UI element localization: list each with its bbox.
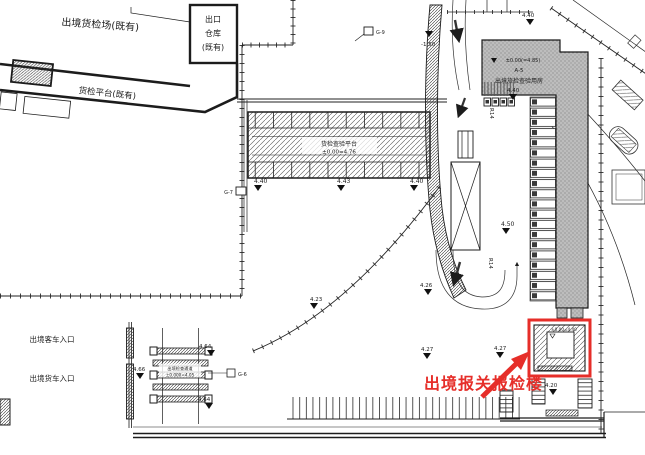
- keynote-g9: G-9: [376, 30, 385, 36]
- elevation-marker: 4.40: [522, 13, 535, 25]
- radius-label: R14: [487, 258, 493, 269]
- elevation-marker: 4.43: [337, 178, 351, 191]
- toll-gate: 出境检查通道 ±0.000=4.05 G-6: [150, 328, 247, 424]
- inspection-platform-building: 货检查验平台 ±0.00=4.76: [248, 112, 430, 178]
- entrance-bus-label: 出境客车入口: [30, 334, 75, 344]
- elevation-marker: 4.26: [420, 283, 433, 295]
- highlight-label: 出境报关报检楼: [424, 374, 543, 393]
- svg-text:4.27: 4.27: [494, 346, 507, 352]
- platform-building-level: ±0.00=4.76: [322, 150, 356, 156]
- elevation-marker: 4.27: [494, 346, 507, 358]
- svg-text:4.66: 4.66: [133, 367, 146, 373]
- plan-svg: 出境货检场(既有) 出口 仓库 (既有) 货检平台(既有): [0, 0, 645, 455]
- svg-text:4.64: 4.64: [199, 344, 212, 350]
- elevation-marker: 4.40: [254, 178, 268, 191]
- svg-text:4.26: 4.26: [420, 283, 433, 289]
- svg-text:4.20: 4.20: [545, 383, 558, 389]
- parking-row: [287, 397, 520, 419]
- entrance-gates: 出境客车入口 出境货车入口: [0, 322, 134, 428]
- svg-text:4.23: 4.23: [310, 297, 323, 303]
- elevation-marker: 4.23: [310, 297, 323, 309]
- building-strip: [538, 366, 572, 371]
- keynote-g7: G-7: [224, 190, 233, 196]
- weighbridge: [451, 131, 480, 250]
- svg-text:4.40: 4.40: [507, 88, 520, 94]
- elevation-marker: 4.50: [501, 221, 515, 234]
- corner-hatched-box: [0, 399, 10, 425]
- main-building-floor: 1F: [455, 28, 463, 35]
- warehouse-label: 仓库: [205, 28, 221, 38]
- main-building-code: A-5: [514, 68, 524, 74]
- svg-text:4.40: 4.40: [522, 13, 535, 19]
- elevation-marker: 4.27: [421, 347, 434, 359]
- dock-leveler-hatched: [11, 60, 53, 86]
- lane-arrow: [460, 98, 465, 112]
- elevation-marker: 4.40: [410, 178, 424, 191]
- curved-fence: [253, 186, 440, 351]
- svg-text:4.64: 4.64: [198, 397, 211, 403]
- toll-gate-level: ±0.000=4.05: [166, 373, 195, 378]
- booth-column: [530, 97, 556, 301]
- elevation-marker: 4.66: [133, 367, 146, 379]
- site-plan-drawing: 出境货检场(既有) 出口 仓库 (既有) 货检平台(既有): [0, 0, 645, 455]
- toll-gate-name: 出境检查通道: [167, 365, 193, 372]
- warehouse-label: (既有): [202, 42, 224, 52]
- svg-text:4.43: 4.43: [337, 178, 351, 185]
- radius-label: R14: [488, 108, 494, 119]
- elevation-marker: 4.20: [545, 383, 558, 395]
- dock-vehicle: [23, 96, 71, 118]
- existing-facility: 出境货检场(既有) 出口 仓库 (既有) 货检平台(既有): [0, 5, 237, 118]
- speed-bump: [546, 410, 578, 416]
- toll-gate-note: G-6: [238, 372, 247, 378]
- radius-labels: R14 R14: [487, 108, 494, 269]
- svg-text:4.40: 4.40: [254, 178, 268, 185]
- gate-bus: [127, 328, 134, 358]
- keynote-box: [227, 369, 235, 377]
- svg-text:4.40: 4.40: [410, 178, 424, 185]
- warehouse-label: 出口: [205, 14, 221, 24]
- svg-text:-1.50: -1.50: [421, 42, 436, 48]
- svg-text:4.27: 4.27: [421, 347, 434, 353]
- main-building-level: ±0.00(=4.85): [506, 58, 541, 64]
- entrance-truck-label: 出境货车入口: [30, 373, 75, 383]
- highlight-inner-level: ±0.00=4.40: [551, 327, 577, 332]
- existing-field-label: 出境货检场(既有): [61, 15, 140, 33]
- svg-text:4.50: 4.50: [501, 221, 515, 228]
- highlight-group: ±0.00=4.40 出境报关报检楼: [424, 320, 590, 397]
- leader-line: [131, 7, 190, 22]
- platform-building-name: 货检查验平台: [321, 140, 357, 148]
- dock-vehicle: [0, 92, 17, 111]
